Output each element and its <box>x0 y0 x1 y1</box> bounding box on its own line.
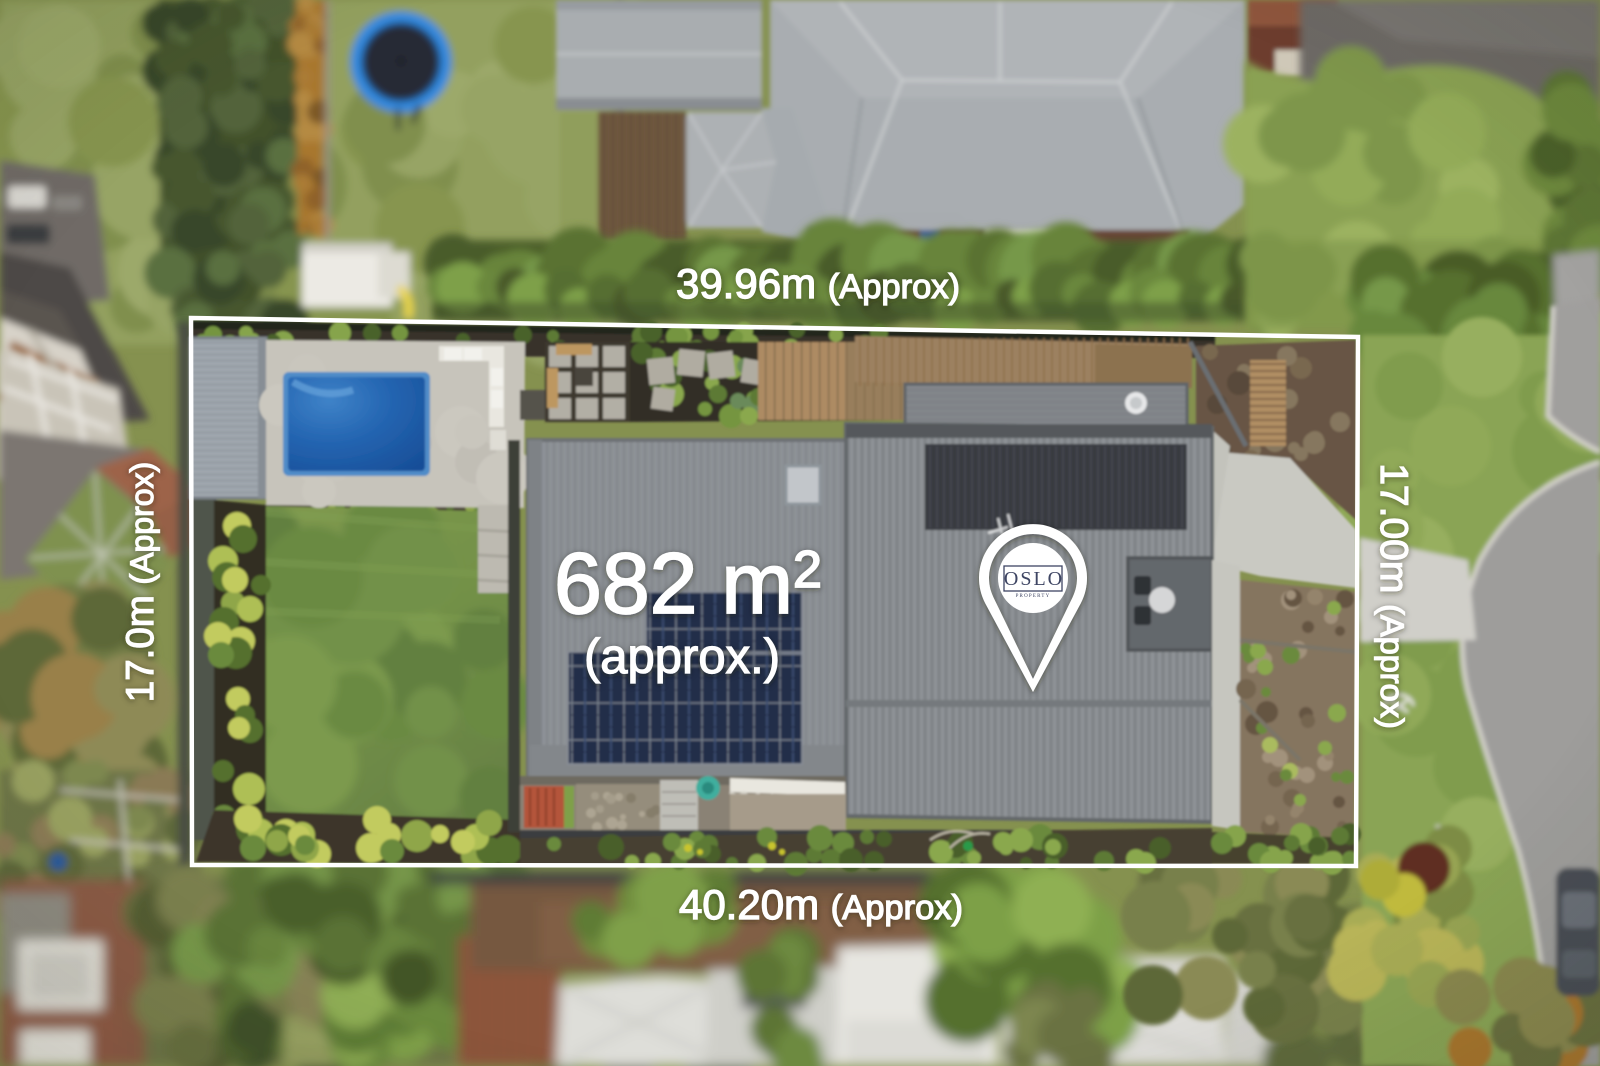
svg-text:17.00m (Approx): 17.00m (Approx) <box>1372 463 1415 729</box>
svg-text:PROPERTY: PROPERTY <box>1016 594 1051 599</box>
svg-text:40.20m (Approx): 40.20m (Approx) <box>679 881 963 928</box>
svg-text:17.0m (Approx): 17.0m (Approx) <box>119 462 162 702</box>
svg-text:682 m2: 682 m2 <box>554 536 822 632</box>
svg-text:OSLO: OSLO <box>1004 568 1064 590</box>
svg-text:39.96m (Approx): 39.96m (Approx) <box>676 260 960 307</box>
svg-text:(approx.): (approx.) <box>584 630 780 684</box>
